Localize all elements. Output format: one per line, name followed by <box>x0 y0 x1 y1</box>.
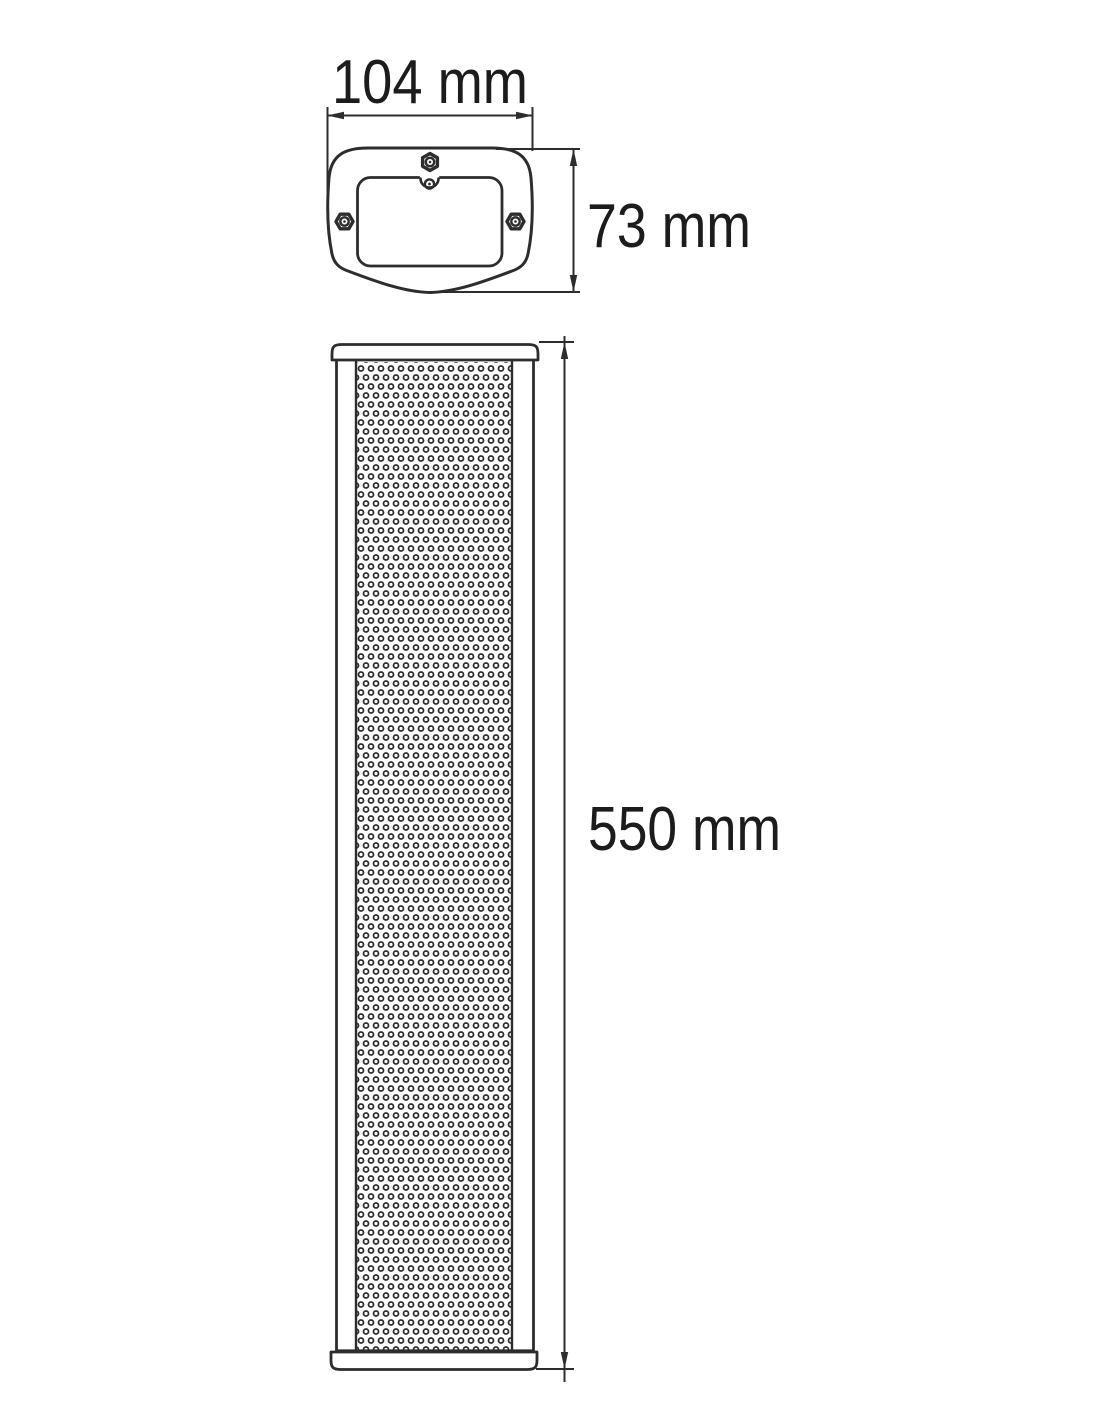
grille-perforation <box>356 362 512 1350</box>
dimension-depth-arrow-bottom <box>570 275 577 292</box>
dimension-height: 550 mm <box>536 336 781 1382</box>
screw-left <box>336 214 353 229</box>
dimension-depth-arrow-top <box>570 149 577 166</box>
front-view-top-cap <box>332 345 538 361</box>
screw-left-dot <box>343 220 346 223</box>
dimension-height-arrow-bottom <box>561 1352 568 1369</box>
top-view-grille-frame <box>358 178 503 267</box>
screw-right-dot <box>514 220 517 223</box>
front-view <box>331 345 538 1370</box>
drawing-canvas: 104 mm 73 mm <box>0 0 1100 1422</box>
locating-pin-dot <box>428 183 431 186</box>
technical-drawing: 104 mm 73 mm <box>0 0 1100 1422</box>
dimension-depth: 73 mm <box>429 149 751 292</box>
screw-top-dot <box>429 161 432 164</box>
dimension-depth-label: 73 mm <box>587 192 751 261</box>
top-view <box>328 148 532 293</box>
front-view-bottom-cap <box>331 1352 537 1370</box>
dimension-height-arrow-top <box>561 342 568 359</box>
screw-top <box>423 154 438 171</box>
dimension-height-label: 550 mm <box>588 795 781 864</box>
screw-right <box>507 214 524 229</box>
dimension-width-label: 104 mm <box>332 48 528 117</box>
